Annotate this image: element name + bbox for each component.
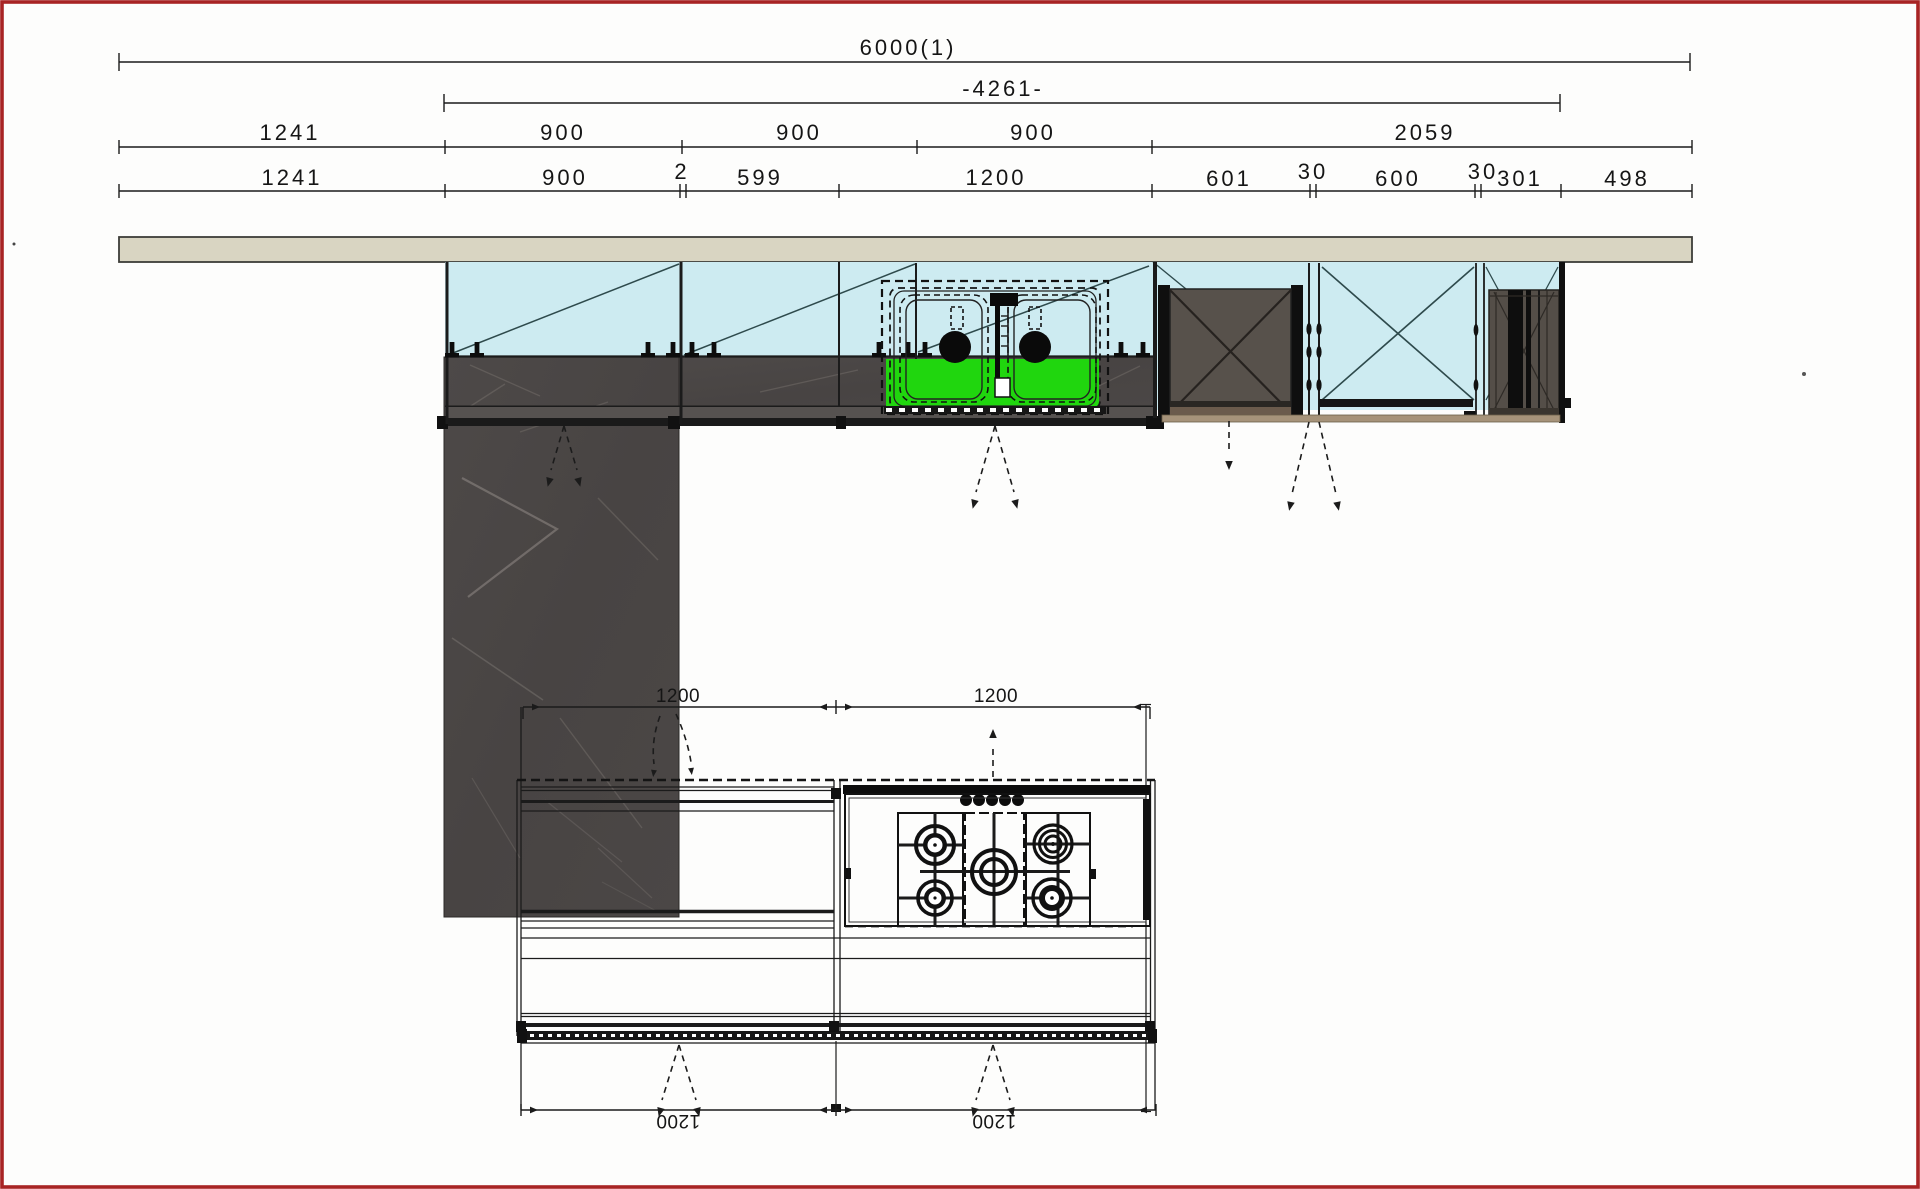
svg-text:2059: 2059 (1395, 120, 1456, 145)
svg-text:-4261-: -4261- (962, 76, 1044, 101)
svg-text:1200: 1200 (656, 1110, 700, 1131)
svg-text:1200: 1200 (656, 686, 700, 707)
svg-text:1241: 1241 (260, 120, 321, 145)
svg-text:900: 900 (542, 165, 588, 190)
svg-text:900: 900 (1010, 120, 1056, 145)
svg-text:600: 600 (1375, 166, 1421, 191)
svg-text:900: 900 (540, 120, 586, 145)
svg-text:30: 30 (1468, 159, 1498, 184)
svg-text:1241: 1241 (262, 165, 323, 190)
svg-text:599: 599 (737, 165, 783, 190)
svg-text:6000(1): 6000(1) (860, 35, 957, 60)
svg-text:2: 2 (674, 159, 689, 184)
svg-text:1200: 1200 (966, 165, 1027, 190)
svg-text:1200: 1200 (972, 1110, 1016, 1131)
svg-text:30: 30 (1298, 159, 1328, 184)
svg-text:498: 498 (1604, 166, 1650, 191)
svg-text:900: 900 (776, 120, 822, 145)
svg-text:601: 601 (1206, 166, 1252, 191)
svg-text:301: 301 (1497, 166, 1543, 191)
svg-text:1200: 1200 (974, 686, 1018, 707)
